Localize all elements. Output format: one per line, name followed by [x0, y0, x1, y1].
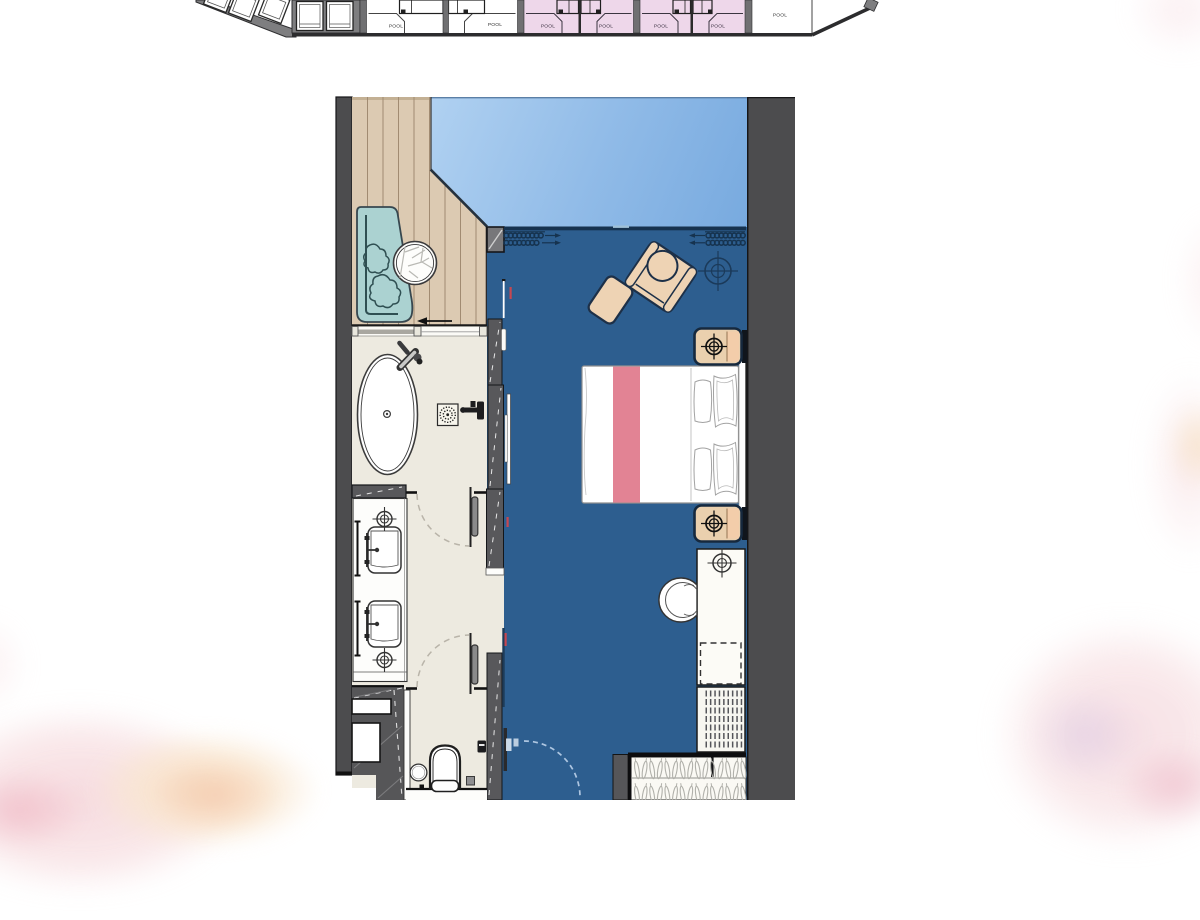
svg-text:POOL: POOL [773, 13, 787, 19]
svg-text:POOL: POOL [389, 24, 403, 30]
svg-text:POOL: POOL [711, 24, 725, 30]
svg-text:POOL: POOL [488, 22, 502, 28]
svg-text:POOL: POOL [541, 24, 555, 30]
svg-text:POOL: POOL [654, 24, 668, 30]
svg-text:POOL: POOL [599, 24, 613, 30]
